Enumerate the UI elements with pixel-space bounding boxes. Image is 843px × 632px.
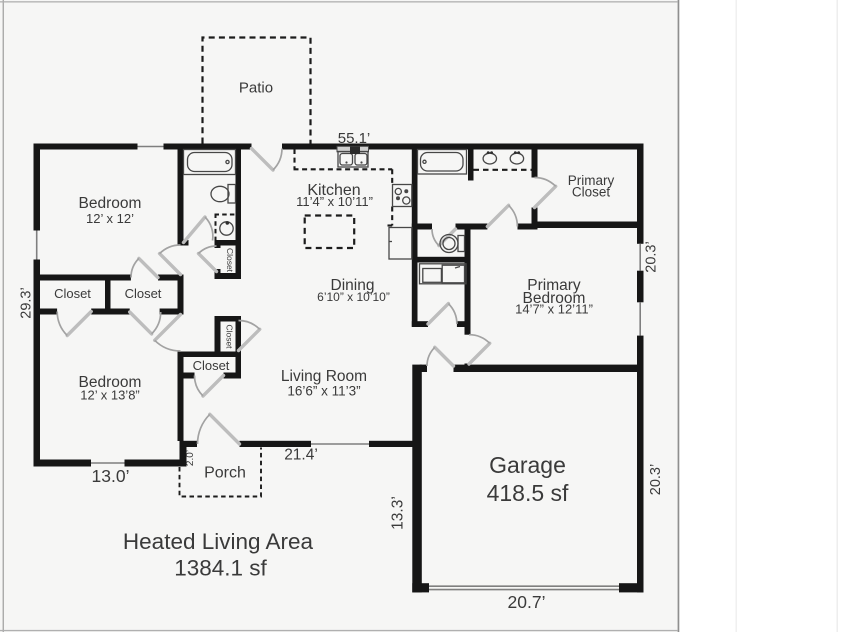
- svg-text:29.3’: 29.3’: [19, 287, 35, 318]
- svg-text:418.5 sf: 418.5 sf: [487, 480, 569, 506]
- svg-text:Heated Living Area: Heated Living Area: [123, 529, 314, 554]
- svg-text:Bedroom: Bedroom: [79, 195, 142, 212]
- svg-text:Porch: Porch: [204, 465, 246, 482]
- svg-text:Patio: Patio: [239, 80, 273, 97]
- svg-text:13.3’: 13.3’: [390, 496, 407, 530]
- svg-text:Closet: Closet: [193, 358, 230, 373]
- svg-text:12’ x 13’8”: 12’ x 13’8”: [80, 388, 140, 403]
- svg-text:2.0’: 2.0’: [185, 450, 196, 466]
- svg-text:20.3’: 20.3’: [648, 464, 664, 495]
- svg-text:13.0’: 13.0’: [92, 466, 130, 486]
- svg-text:Closet: Closet: [225, 248, 235, 273]
- svg-text:55.1’: 55.1’: [338, 130, 371, 147]
- svg-text:Closet: Closet: [572, 185, 611, 200]
- svg-text:Living Room: Living Room: [281, 368, 367, 385]
- svg-text:20.7’: 20.7’: [508, 592, 546, 612]
- svg-text:Garage: Garage: [489, 452, 566, 478]
- svg-text:Closet: Closet: [125, 286, 162, 301]
- svg-text:20.3’: 20.3’: [644, 241, 660, 272]
- svg-text:1384.1 sf: 1384.1 sf: [174, 556, 267, 581]
- svg-text:16’6” x 11’3”: 16’6” x 11’3”: [287, 384, 360, 399]
- svg-text:21.4’: 21.4’: [284, 447, 318, 464]
- svg-text:14’7” x 12’11”: 14’7” x 12’11”: [515, 302, 593, 317]
- svg-text:Closet: Closet: [225, 324, 235, 349]
- svg-text:Closet: Closet: [54, 286, 91, 301]
- svg-text:6’10” x 10’10”: 6’10” x 10’10”: [317, 290, 390, 304]
- svg-text:11’4” x 10’11”: 11’4” x 10’11”: [296, 194, 373, 209]
- svg-text:12’ x 12’: 12’ x 12’: [86, 211, 134, 226]
